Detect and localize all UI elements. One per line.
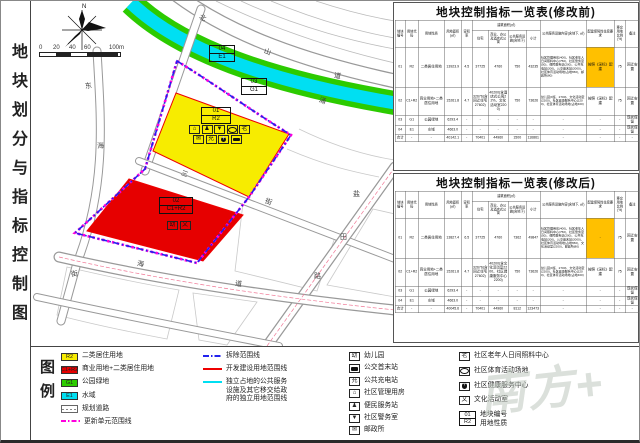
table-cell: 6293.4 xyxy=(444,115,461,125)
table-cell: 8112 xyxy=(508,306,526,313)
facility-icon: 文 xyxy=(180,221,191,230)
table-cell: 49847 xyxy=(526,218,540,258)
legend-item: 01R2地块编号 用地性质 xyxy=(459,411,549,426)
table-subheader: 公共服务设施(含地下) xyxy=(508,201,526,218)
table-cell: 按照《深标》配建 xyxy=(586,47,614,87)
table-cell: 15261.8 xyxy=(444,87,461,115)
table-cell: - xyxy=(526,125,540,135)
table-cell: - xyxy=(614,306,625,313)
facility-icon: ♟ xyxy=(202,125,213,134)
table-cell: - xyxy=(461,135,472,142)
table-cell: - xyxy=(488,125,508,135)
legend-item: 幼幼儿园 xyxy=(349,352,405,364)
glyph-icon: 文 xyxy=(182,222,188,229)
table-cell: 4663.0 xyxy=(444,296,461,306)
table-cell: - xyxy=(614,135,625,142)
table-cell: - xyxy=(586,306,614,313)
table-cell: - xyxy=(625,135,639,142)
table-cell: 按照《深标》配建 xyxy=(586,87,614,115)
table-cell: - xyxy=(614,125,625,135)
table-subheader: 公共服务设施(含地下) xyxy=(508,30,526,47)
table-cell: - xyxy=(472,115,488,125)
table-cell: 4663.0 xyxy=(444,125,461,135)
table-cell: 123473 xyxy=(526,306,540,313)
parcel-code-legend-box: 01R2 xyxy=(459,411,476,426)
planning-sheet: 地块划分与指标控制图 xyxy=(0,0,640,443)
table-cell: R2 xyxy=(405,218,418,258)
glyph-icon: 老 xyxy=(241,126,247,133)
table-header: 配建保障性住房要求 xyxy=(586,20,614,47)
parcel-number: 04 xyxy=(210,46,234,54)
table-cell: - xyxy=(508,296,526,306)
table-subheader: 商业、办公及酒店式公寓 xyxy=(488,30,508,47)
facility-icon: 老 xyxy=(239,125,250,134)
glyph-icon: ▼ xyxy=(352,415,358,422)
table-cell: - xyxy=(625,306,639,313)
scale-tick-label: 20 xyxy=(53,45,60,51)
table-cell: 75 xyxy=(614,218,625,258)
glyph-icon: ✉ xyxy=(352,427,357,434)
table-cell: - xyxy=(586,125,614,135)
table-cell: 回迁安置 xyxy=(625,258,639,286)
parcel-label-03: 03G1 xyxy=(241,78,267,95)
legend-item-label: 社区体育活动场地 xyxy=(474,367,528,375)
table-row: 03G1公园绿地6293.4--------现状保留 xyxy=(395,286,639,296)
landuse-swatch: C1+R2 xyxy=(61,366,78,374)
legend-item-label: 社区管理用房 xyxy=(364,389,405,397)
table-cell: 按照《深标》配建 xyxy=(586,258,614,286)
scale-bar-line xyxy=(39,52,121,57)
legend-item-label: 公共充电站 xyxy=(364,377,398,385)
planned-road-swatch xyxy=(61,405,78,413)
table-cell: 40142.1 xyxy=(444,135,461,142)
table-row: 02C1+R2商业用地+二类居住用地15261.84.732676(含回迁住宅2… xyxy=(395,258,639,286)
landuse-swatch: E1 xyxy=(61,392,78,400)
legend-item: 独立占地的公共服务 设施及其它移交给政 府的独立用地范围线 xyxy=(203,378,287,418)
table-after-title: 地块控制指标一览表(修改后) xyxy=(394,174,638,191)
table-cell: E1 xyxy=(405,125,418,135)
redline-swatch xyxy=(203,368,222,370)
table-cell: 现状保留 xyxy=(625,115,639,125)
bus-terminal-icon xyxy=(351,367,358,371)
facility-icon: 充 xyxy=(349,377,360,386)
table-cell: 商业用地+二类居住用地 xyxy=(418,87,444,115)
cyanline-swatch xyxy=(203,381,222,383)
table-cell: 6293.4 xyxy=(444,286,461,296)
table-header: 配建保障性住房要求 xyxy=(586,191,614,218)
indicator-table-before: 地块控制指标一览表(修改前) 地块编号用地代码用地性质用地面积(㎡)容积率建筑面… xyxy=(393,2,639,171)
legend-item: 开发建设用地范围线 xyxy=(203,365,287,378)
table-cell: 社区管理用房(400)、社区老年人日间照料中心(750)、社区警务室(50)、便… xyxy=(540,218,586,258)
legend-title: 图例 xyxy=(36,359,57,407)
table-cell: 1500 xyxy=(508,135,526,142)
scale-bar: 0204060100m xyxy=(39,45,121,59)
parcel-label-02: 02C1+R2 xyxy=(159,197,193,214)
table-row: 04E1水域4663.0--------现状保留 xyxy=(395,296,639,306)
scale-tick-label: 60 xyxy=(84,45,91,51)
parcel-02-facility-icons: 幼文 xyxy=(167,221,191,230)
table-cell: 43235 xyxy=(526,47,540,87)
table-cell: 01 xyxy=(395,218,405,258)
table-cell: 32676(含回迁住宅27602) xyxy=(472,87,488,115)
street-name-label: 街 xyxy=(70,268,79,279)
legend-item-label: 更新单元范围线 xyxy=(84,418,132,426)
table-after-grid: 地块编号用地代码用地性质用地面积(㎡)容积率建筑面积(㎡)公共服务设施内容(含地… xyxy=(395,191,640,313)
glyph-icon: ✉ xyxy=(196,136,201,143)
table-cell: 40200(含文化活动室2200、社区健康服务中心2200) xyxy=(488,258,508,286)
table-cell: 6.5 xyxy=(461,218,472,258)
legend-item: 公交首末站 xyxy=(349,364,405,376)
table-cell: 现状保留 xyxy=(625,296,639,306)
scale-tick-label: 0 xyxy=(39,45,42,51)
table-cell: - xyxy=(488,115,508,125)
table-cell: 03 xyxy=(395,286,405,296)
legend-item-label: 商业用地+二类居住用地 xyxy=(82,365,154,373)
facility-icon: ▼ xyxy=(349,414,360,423)
table-header: 建筑面积(㎡) xyxy=(472,20,540,30)
table-subheader: 商业、办公及酒店式公寓 xyxy=(488,201,508,218)
parcel-use-code: R2 xyxy=(202,116,230,123)
scale-tick-label: 100m xyxy=(109,45,124,51)
legend-landuse-column: R2二类居住用地C1+R2商业用地+二类居住用地G1公园绿地E1水域规划道路更新… xyxy=(61,352,154,431)
glyph-icon: 老 xyxy=(461,353,467,360)
table-cell: 公园绿地 xyxy=(418,115,444,125)
table-cell: - xyxy=(508,286,526,296)
table-cell: 社区管理用房(400)、社区老年人日间照料中心(750)、社区警务室(50)、便… xyxy=(540,47,586,87)
facility-icon: + xyxy=(459,382,470,391)
table-cell: - xyxy=(614,115,625,125)
glyph-icon: ⌂ xyxy=(193,126,197,133)
table-cell: 750 xyxy=(508,87,526,115)
sports-ground-icon xyxy=(228,127,237,133)
table-cell: - xyxy=(488,296,508,306)
legend-item: 社区体育活动场地 xyxy=(459,367,549,382)
legend-item-label: 社区健康服务中心 xyxy=(474,382,528,390)
table-cell: R2 xyxy=(405,47,418,87)
table-cell: 合计 xyxy=(395,135,405,142)
legend-item: ♟便民服务站 xyxy=(349,402,405,414)
table-cell: - xyxy=(586,135,614,142)
table-cell: - xyxy=(540,286,586,296)
table-row: 合计--40045.6-70401449608112123473---- xyxy=(395,306,639,313)
table-cell: 现状保留 xyxy=(625,125,639,135)
legend-item: 老社区老年人日间照料中心 xyxy=(459,352,549,367)
facility-icon xyxy=(227,125,238,134)
table-cell: - xyxy=(461,125,472,135)
table-header: 备注 xyxy=(625,191,639,218)
table-cell: - xyxy=(614,286,625,296)
legend-item-label: 文化活动室 xyxy=(474,396,508,404)
table-cell: 幼儿园(9班、2700)、文化活动室(2200)、社区健康服务中心(2200)、… xyxy=(540,258,586,286)
table-cell: 37725 xyxy=(472,218,488,258)
facility-icon: ♟ xyxy=(349,402,360,411)
landuse-swatch: R2 xyxy=(61,353,78,361)
table-cell: 70401 xyxy=(472,135,488,142)
table-subheader: 住宅 xyxy=(472,30,488,47)
table-cell: 44960 xyxy=(488,306,508,313)
table-cell: 75 xyxy=(614,47,625,87)
facility-icon: ✉ xyxy=(349,426,360,435)
table-cell: - xyxy=(508,115,526,125)
landuse-swatch: G1 xyxy=(61,379,78,387)
table-cell: 75 xyxy=(614,87,625,115)
parcel-number: 03 xyxy=(242,79,266,87)
table-cell: 02 xyxy=(395,258,405,286)
facility-icon: ▼ xyxy=(214,125,225,134)
legend-facility-column-2: 老社区老年人日间照料中心社区体育活动场地+社区健康服务中心文文化活动室01R2地… xyxy=(459,352,549,426)
parcel-label-04: 04E1 xyxy=(209,45,235,62)
table-cell: - xyxy=(540,115,586,125)
parcel-use-code: G1 xyxy=(242,87,266,94)
renewal-unit-line-swatch xyxy=(61,420,80,422)
table-header: 建筑面积(㎡) xyxy=(472,191,540,201)
table-cell: 4.7 xyxy=(461,87,472,115)
table-row: 03G1公园绿地6293.4--------现状保留 xyxy=(395,115,639,125)
table-cell: 合计 xyxy=(395,306,405,313)
street-name-label: 道 xyxy=(234,279,242,290)
table-cell: 03 xyxy=(395,115,405,125)
bluedash-swatch xyxy=(203,355,222,357)
legend-item: ✉邮政所 xyxy=(349,426,405,438)
legend-item-label: 社区老年人日间照料中心 xyxy=(474,352,549,360)
legend-item: C1+R2商业用地+二类居住用地 xyxy=(61,365,154,378)
table-cell: 116861 xyxy=(526,135,540,142)
table-cell: 回迁安置 xyxy=(625,87,639,115)
legend-item-label: 公交首末站 xyxy=(364,364,398,372)
scale-tick-label: 40 xyxy=(69,45,76,51)
facility-icon: ⌂ xyxy=(349,389,360,398)
legend-item: 规划道路 xyxy=(61,405,154,418)
table-before-title: 地块控制指标一览表(修改前) xyxy=(394,3,638,20)
glyph-icon: ♟ xyxy=(204,126,209,133)
table-cell: - xyxy=(461,296,472,306)
legend-item: 更新单元范围线 xyxy=(61,418,154,431)
table-cell: - xyxy=(586,286,614,296)
legend-item: E1水域 xyxy=(61,392,154,405)
landuse-map: N 0204060100m 北山道东海街三街盐田路海道涌 04E103G101R… xyxy=(31,1,393,346)
table-header: 公共服务设施内容(含地下, ㎡) xyxy=(540,191,586,218)
table-cell: - xyxy=(472,296,488,306)
facility-icon: 文 xyxy=(459,396,470,405)
facility-icon: 充 xyxy=(206,135,217,144)
health-center-icon: + xyxy=(462,383,468,389)
table-row: 02C1+R2商业用地+二类居住用地15261.84.732676(含回迁住宅2… xyxy=(395,87,639,115)
legend-item-label: 拆除范围线 xyxy=(226,352,260,360)
table-subheader: 住宅 xyxy=(472,201,488,218)
table-cell: 4.5 xyxy=(461,47,472,87)
table-cell: E1 xyxy=(405,296,418,306)
table-header: 地块编号 xyxy=(395,20,405,47)
table-cell: 750 xyxy=(508,258,526,286)
table-cell: - xyxy=(614,296,625,306)
table-cell: 04 xyxy=(395,125,405,135)
table-cell: 二类居住用地 xyxy=(418,218,444,258)
table-cell: 4760 xyxy=(488,47,508,87)
table-row: 04E1水域4663.0--------现状保留 xyxy=(395,125,639,135)
table-cell: G1 xyxy=(405,286,418,296)
table-cell: - xyxy=(418,306,444,313)
sports-ground-icon xyxy=(460,368,469,374)
legend-item-label: 邮政所 xyxy=(364,426,384,434)
table-cell: 13827.4 xyxy=(444,218,461,258)
table-cell: 公园绿地 xyxy=(418,286,444,296)
table-cell: - xyxy=(472,286,488,296)
street-name-label: 盐 xyxy=(353,189,360,199)
table-cell: 4760 xyxy=(488,218,508,258)
table-header: 备注 xyxy=(625,20,639,47)
table-cell: 02 xyxy=(395,87,405,115)
table-header: 用地面积(㎡) xyxy=(444,191,461,218)
legend-item: 充公共充电站 xyxy=(349,377,405,389)
legend-item-label: 便民服务站 xyxy=(364,402,398,410)
table-cell: 水域 xyxy=(418,125,444,135)
table-cell: - xyxy=(472,125,488,135)
legend-item-label: 规划道路 xyxy=(82,405,109,413)
table-cell: - xyxy=(461,286,472,296)
legend-item-label: 独立占地的公共服务 设施及其它移交给政 府的独立用地范围线 xyxy=(226,378,287,403)
legend-item: 文文化活动室 xyxy=(459,396,549,411)
table-cell: C1+R2 xyxy=(405,258,418,286)
table-cell: - xyxy=(461,115,472,125)
table-cell: 二类居住用地 xyxy=(418,47,444,87)
legend-boundary-column: 拆除范围线开发建设用地范围线独立占地的公共服务 设施及其它移交给政 府的独立用地… xyxy=(203,352,287,418)
facility-icon xyxy=(231,135,242,144)
table-cell: 37725 xyxy=(472,47,488,87)
facility-icon: 幼 xyxy=(167,221,178,230)
bus-terminal-icon xyxy=(233,138,240,142)
glyph-icon: 文 xyxy=(461,397,467,404)
legend-item: 拆除范围线 xyxy=(203,352,287,365)
glyph-icon: 充 xyxy=(208,136,214,143)
legend-item: ▼社区警务室 xyxy=(349,414,405,426)
table-cell: - xyxy=(526,296,540,306)
table-row: 01R2二类居住用地13923.94.537725476075043235社区管… xyxy=(395,47,639,87)
table-header: 容积率 xyxy=(461,191,472,218)
compass-north-label: N xyxy=(82,4,86,10)
facility-icon: + xyxy=(218,135,229,144)
table-cell: - xyxy=(540,296,586,306)
table-row: 01R2二类居住用地13827.46.5377254760736249847社区… xyxy=(395,218,639,258)
facility-icon: ✉ xyxy=(193,135,204,144)
legend-item-label: 公园绿地 xyxy=(82,378,109,386)
indicator-table-after: 地块控制指标一览表(修改后) 地块编号用地代码用地性质用地面积(㎡)容积率建筑面… xyxy=(393,173,639,343)
parcel-number: 01 xyxy=(202,108,230,116)
facility-icon: 老 xyxy=(459,352,470,361)
table-row: 合计--40142.1-70401449601500116861---- xyxy=(395,135,639,142)
facility-icon xyxy=(459,367,470,376)
legend-item-label: 开发建设用地范围线 xyxy=(226,365,287,373)
legend-item-label: 水域 xyxy=(82,392,96,400)
table-header: 用地性质 xyxy=(418,191,444,218)
legend-item: R2二类居住用地 xyxy=(61,352,154,365)
table-header: 移交用地比例(%) xyxy=(614,20,625,47)
table-cell: - xyxy=(586,115,614,125)
table-cell: C1+R2 xyxy=(405,87,418,115)
table-cell: - xyxy=(540,135,586,142)
glyph-icon: 充 xyxy=(351,378,357,385)
table-cell: 4.7 xyxy=(461,258,472,286)
table-cell: - xyxy=(526,115,540,125)
scale-labels: 0204060100m xyxy=(39,45,121,52)
table-cell: - xyxy=(540,125,586,135)
street-name-label: 海 xyxy=(97,141,105,152)
table-subheader: 小计 xyxy=(526,30,540,47)
table-cell: - xyxy=(418,135,444,142)
table-cell: 水域 xyxy=(418,296,444,306)
table-cell: - xyxy=(526,286,540,296)
table-cell: 现状保留 xyxy=(625,286,639,296)
table-cell: 40200(含酒店式公寓22%、文化活动室2200) xyxy=(488,87,508,115)
table-cell: - xyxy=(508,125,526,135)
legend-item-label: 幼儿园 xyxy=(364,352,384,360)
table-header: 地块编号 xyxy=(395,191,405,218)
table-header: 用地代码 xyxy=(405,20,418,47)
table-header: 公共服务设施内容(含地下, ㎡) xyxy=(540,20,586,47)
table-cell: 15261.8 xyxy=(444,258,461,286)
parcel-use-code: C1+R2 xyxy=(160,206,192,213)
table-cell: 04 xyxy=(395,296,405,306)
parcel-01-icon-row: ✉充+ xyxy=(193,135,242,144)
table-cell: 32676(含回迁住宅27602) xyxy=(472,258,488,286)
table-cell: 40045.6 xyxy=(444,306,461,313)
legend-item: ⌂社区管理用房 xyxy=(349,389,405,401)
table-cell: G1 xyxy=(405,115,418,125)
sheet-title: 地块划分与指标控制图 xyxy=(5,43,29,333)
title-strip: 地块划分与指标控制图 xyxy=(1,1,31,443)
table-cell: - xyxy=(405,135,418,142)
table-cell: 幼儿园(9班、2700)、文化活动室(2200)、社区健康服务中心(2200)、… xyxy=(540,87,586,115)
table-cell: - xyxy=(586,296,614,306)
glyph-icon: ♟ xyxy=(352,403,357,410)
table-cell: - xyxy=(586,218,614,258)
table-header: 容积率 xyxy=(461,20,472,47)
table-cell: 73626 xyxy=(526,258,540,286)
glyph-icon: 幼 xyxy=(351,353,357,360)
table-header: 用地面积(㎡) xyxy=(444,20,461,47)
facility-icon: 幼 xyxy=(349,352,360,361)
table-cell: 750 xyxy=(508,47,526,87)
glyph-icon: 幼 xyxy=(169,222,175,229)
table-cell: - xyxy=(405,306,418,313)
glyph-icon: ▼ xyxy=(217,126,223,133)
table-cell: 7362 xyxy=(508,218,526,258)
table-cell: 70401 xyxy=(472,306,488,313)
table-cell: - xyxy=(488,286,508,296)
table-cell: - xyxy=(540,306,586,313)
table-cell: 01 xyxy=(395,47,405,87)
legend: 图例 R2二类居住用地C1+R2商业用地+二类居住用地G1公园绿地E1水域规划道… xyxy=(31,346,640,441)
parcel-01-icon-row: ⌂♟▼老 xyxy=(189,125,250,134)
street-name-label: 路 xyxy=(314,271,321,281)
street-name-label: 田 xyxy=(340,232,347,242)
facility-icon xyxy=(349,364,360,373)
glyph-icon: ⌂ xyxy=(353,390,357,397)
table-cell: 回迁安置 xyxy=(625,47,639,87)
parcel-number: 02 xyxy=(160,198,192,206)
street-name-label: 东 xyxy=(84,81,92,92)
table-cell: 73626 xyxy=(526,87,540,115)
legend-item: +社区健康服务中心 xyxy=(459,382,549,397)
legend-item-label: 二类居住用地 xyxy=(82,352,123,360)
legend-facility-column-1: 幼幼儿园公交首末站充公共充电站⌂社区管理用房♟便民服务站▼社区警务室✉邮政所 xyxy=(349,352,405,439)
table-cell: 回迁安置 xyxy=(625,218,639,258)
table-header: 移交用地比例(%) xyxy=(614,191,625,218)
table-cell: 13923.9 xyxy=(444,47,461,87)
table-header: 用地性质 xyxy=(418,20,444,47)
table-subheader: 小计 xyxy=(526,201,540,218)
table-cell: 75 xyxy=(614,258,625,286)
table-cell: 44960 xyxy=(488,135,508,142)
